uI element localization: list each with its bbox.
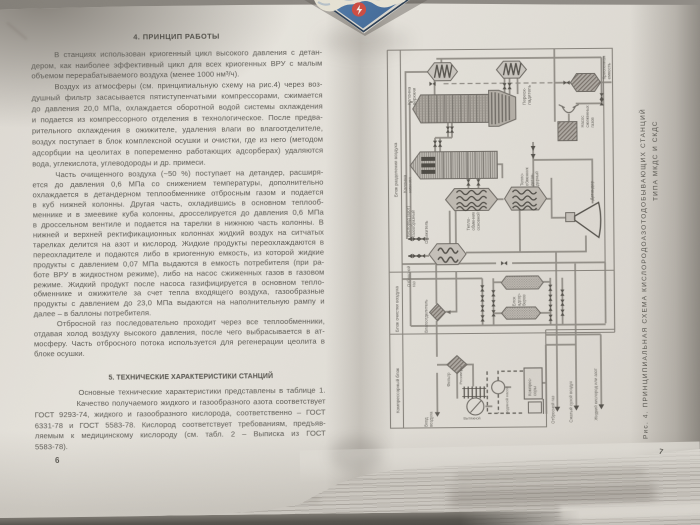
svg-text:Влагоотделитель: Влагоотделитель [423, 299, 428, 333]
svg-text:Компрессорный блок: Компрессорный блок [394, 367, 400, 413]
svg-text:газообразный: газообразный [411, 209, 416, 237]
svg-text:Ресиверы: Ресиверы [458, 366, 463, 385]
svg-text:Вытяжной: Вытяжной [463, 416, 480, 420]
svg-text:Отбросной газ: Отбросной газ [550, 396, 555, 424]
svg-text:беров: беров [521, 294, 526, 306]
svg-text:воздуха: воздуха [428, 411, 433, 427]
svg-text:дерный: дерный [534, 170, 539, 185]
svg-text:газов: газов [590, 116, 595, 127]
svg-text:Жидкий кислород или азот: Жидкий кислород или азот [593, 368, 598, 420]
svg-text:ТИПА МКДС И СКДС: ТИПА МКДС И СКДС [652, 120, 660, 200]
svg-text:ладитель: ладитель [527, 84, 532, 105]
svg-text:емкость: емкость [606, 62, 611, 79]
svg-text:Водяной насос: Водяной насос [504, 386, 509, 414]
svg-text:нижняя: нижняя [407, 177, 412, 193]
svg-text:Фильтр: Фильтр [446, 372, 451, 387]
svg-text:Рис. 4. ПРИНЦИПИАЛЬНАЯ СХЕМА: Рис. 4. ПРИНЦИПИАЛЬНАЯ СХЕМА КИСЛОРОДОАЗ… [638, 108, 650, 439]
svg-text:Детандер: Детандер [589, 180, 594, 200]
svg-text:соры: соры [532, 386, 537, 396]
svg-text:Блок разделения воздуха: Блок разделения воздуха [393, 142, 398, 197]
svg-text:основной: основной [476, 211, 481, 230]
svg-text:газ: газ [411, 281, 416, 287]
svg-text:Сжатый сухой воздух: Сжатый сухой воздух [568, 380, 573, 423]
svg-text:Блок очистки воздуха: Блок очистки воздуха [394, 286, 399, 332]
